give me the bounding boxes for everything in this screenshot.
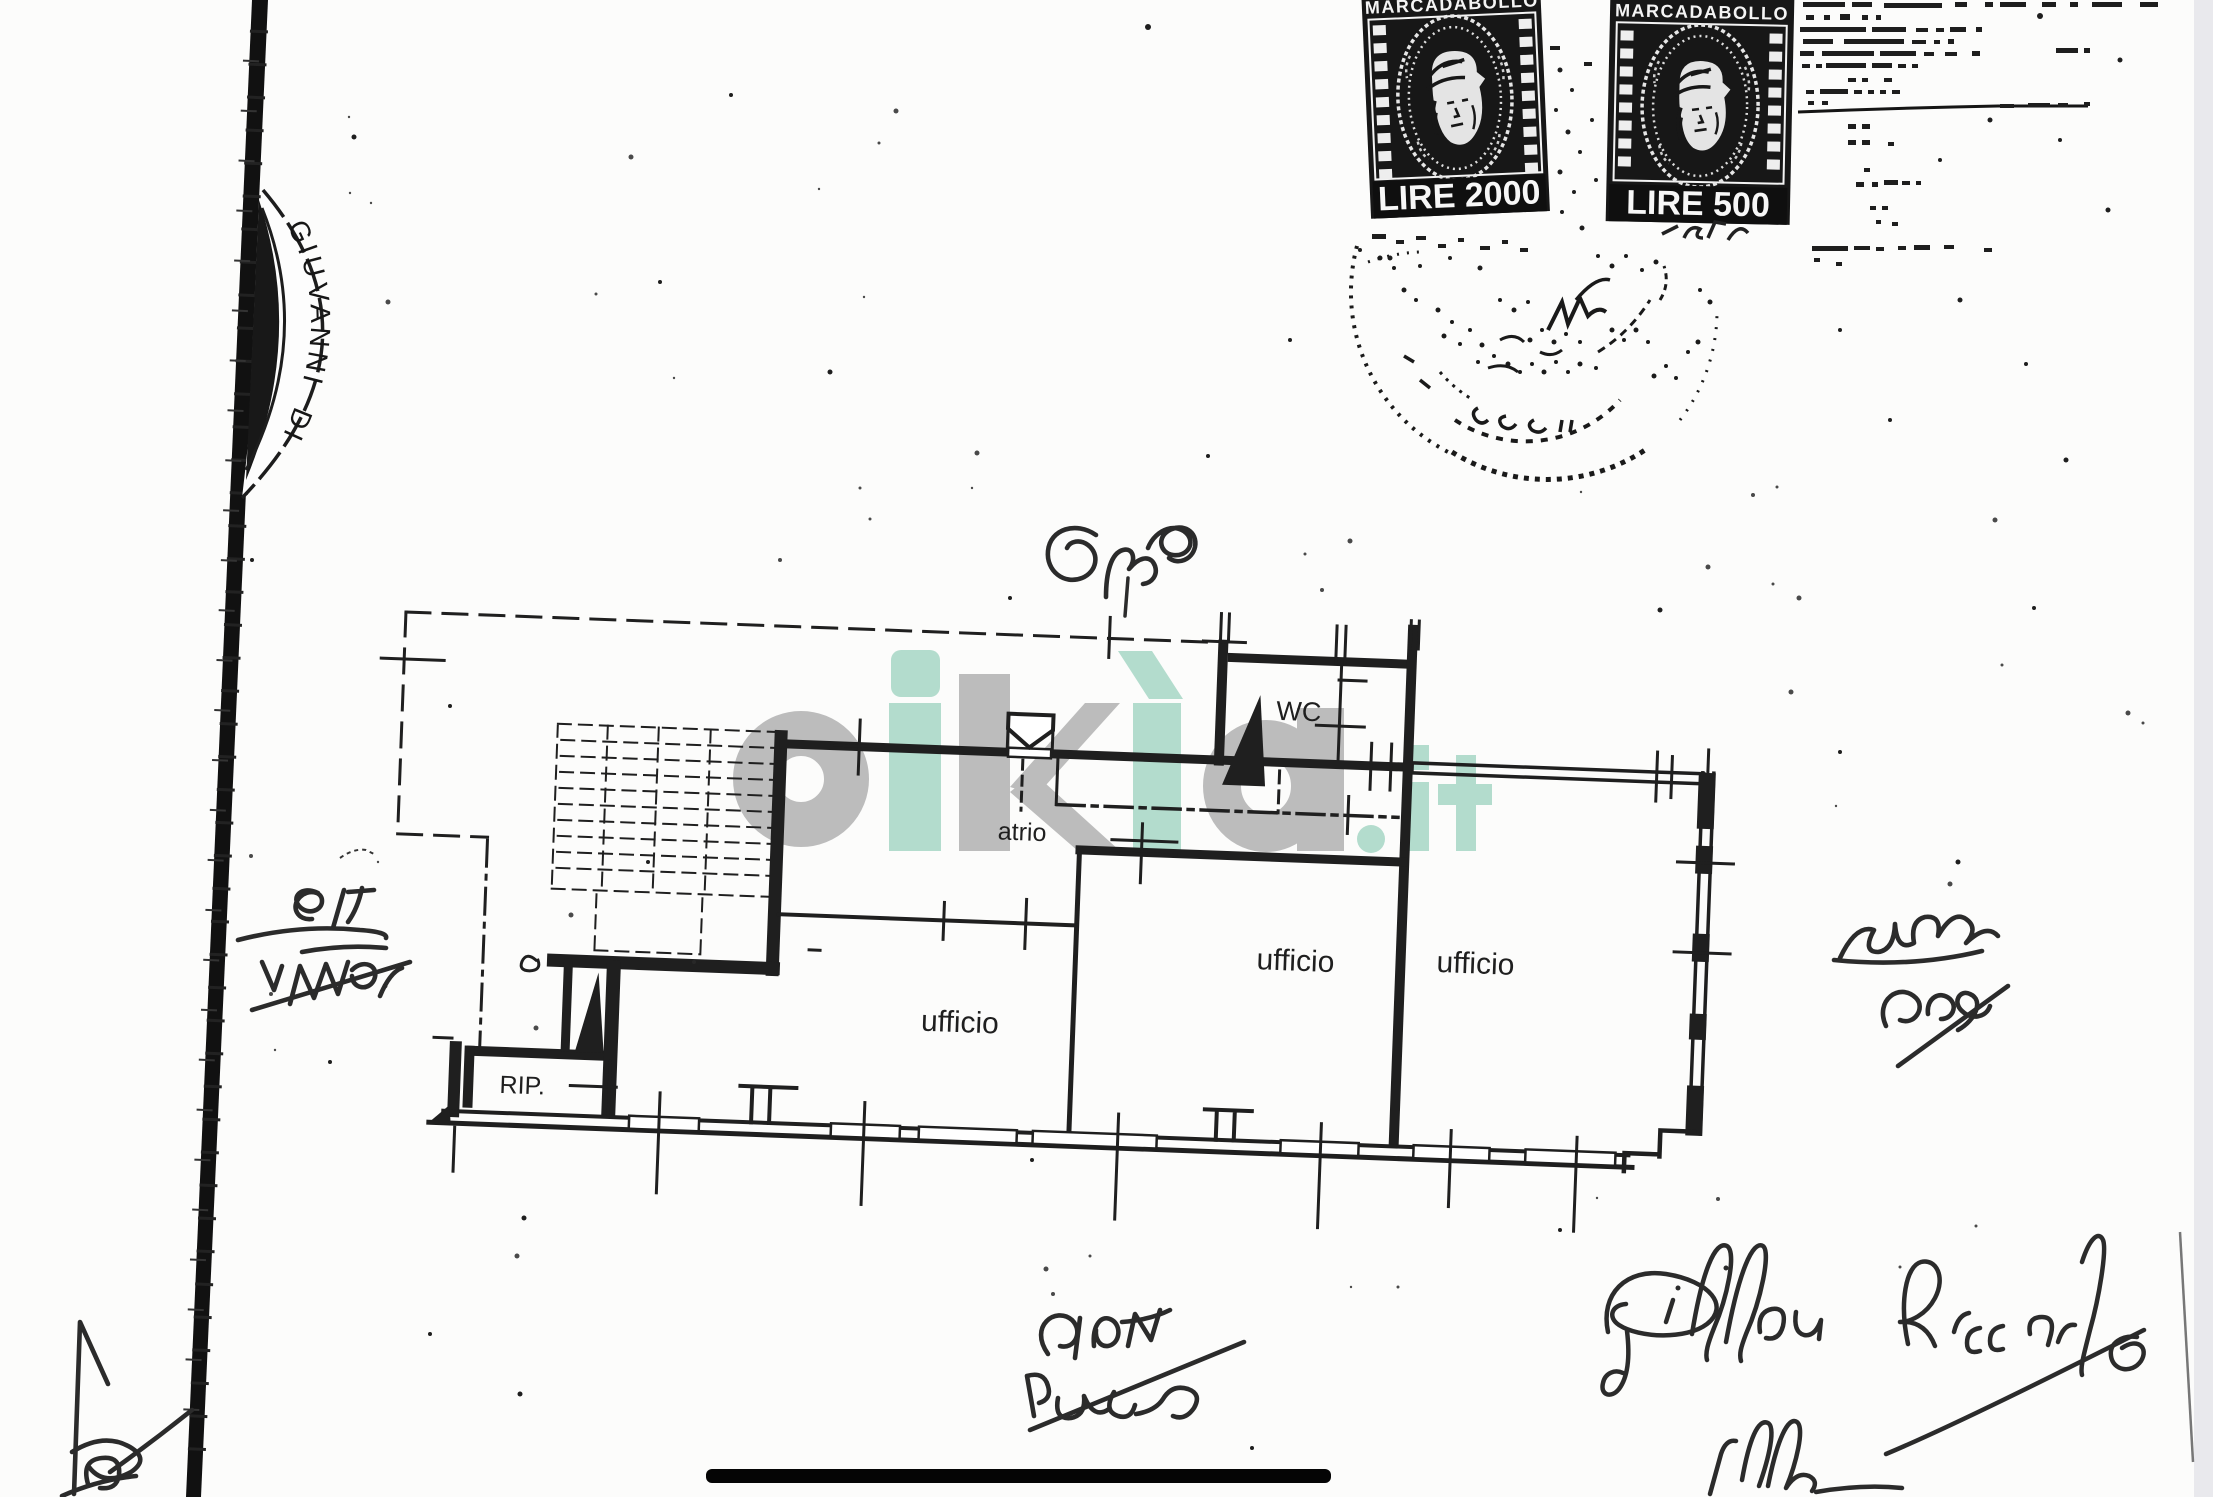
svg-text:atrio: atrio [997, 817, 1047, 847]
svg-text:ufficio: ufficio [1436, 946, 1515, 982]
svg-text:MARCADABOLLO: MARCADABOLLO [1615, 0, 1789, 24]
svg-text:ufficio: ufficio [1256, 943, 1335, 979]
svg-text:LIRE 2000: LIRE 2000 [1377, 173, 1541, 218]
svg-text:LIRE 500: LIRE 500 [1626, 184, 1770, 225]
svg-text:ufficio: ufficio [920, 1005, 999, 1041]
svg-text:WC: WC [1276, 696, 1322, 728]
svg-text:RIP.: RIP. [499, 1071, 545, 1101]
